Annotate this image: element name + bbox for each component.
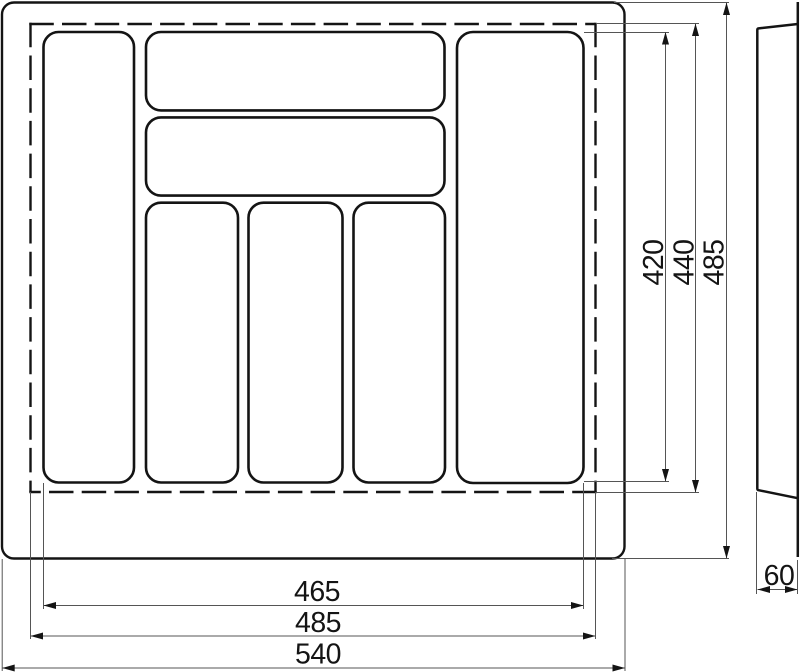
svg-text:540: 540 <box>295 639 341 671</box>
svg-text:60: 60 <box>764 560 795 592</box>
svg-text:485: 485 <box>295 607 341 639</box>
svg-text:465: 465 <box>294 576 340 608</box>
svg-text:485: 485 <box>699 239 731 285</box>
svg-text:440: 440 <box>669 239 701 285</box>
svg-text:420: 420 <box>638 239 670 285</box>
